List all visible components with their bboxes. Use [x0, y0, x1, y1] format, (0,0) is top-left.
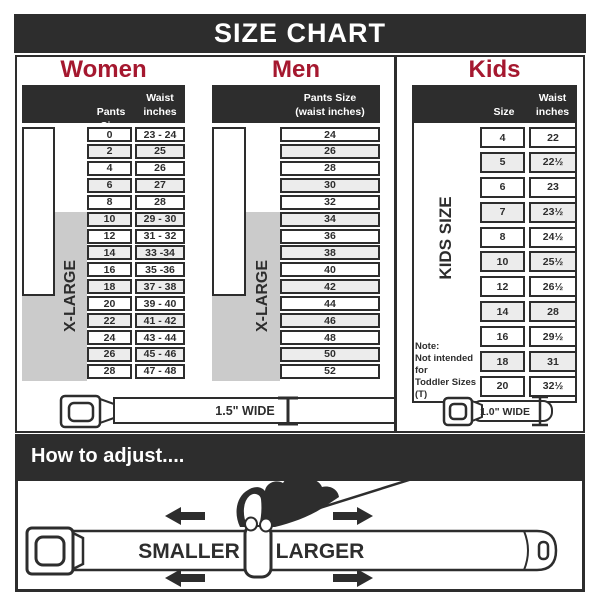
table-cell: 28 [529, 301, 577, 322]
table-row: 38 [280, 245, 380, 262]
table-cell: 2 [87, 144, 132, 159]
table-row: 426 [87, 161, 185, 178]
table-cell: 31 [529, 351, 577, 372]
table-cell: 26 [87, 347, 132, 362]
table-row: 2241 - 42 [87, 313, 185, 330]
table-cell: 28 [280, 161, 380, 176]
table-cell: 25½ [529, 251, 577, 272]
table-cell: 37 - 38 [135, 279, 185, 294]
table-cell: 32 [280, 195, 380, 210]
table-cell: 22 [87, 313, 132, 328]
size-chart-page: SIZE CHART Women Pants Size Waist inches… [0, 0, 600, 600]
table-cell: 28 [135, 195, 185, 210]
table-cell: 38 [280, 245, 380, 260]
table-cell: 50 [280, 347, 380, 362]
hand-thumbtip [260, 519, 272, 532]
table-cell: 24½ [529, 227, 577, 248]
table-cell: 45 - 46 [135, 347, 185, 362]
table-row: 623 [480, 177, 577, 202]
table-cell: 4 [480, 127, 525, 148]
table-cell: 29½ [529, 326, 577, 347]
table-cell: 48 [280, 330, 380, 345]
table-cell: 16 [87, 262, 132, 277]
table-row: 1029 - 30 [87, 212, 185, 229]
table-row: 40 [280, 262, 380, 279]
table-row: 225 [87, 144, 185, 161]
table-cell: 24 [87, 330, 132, 345]
table-cell: 47 - 48 [135, 364, 185, 379]
table-cell: 22½ [529, 152, 577, 173]
table-cell: 5 [480, 152, 525, 173]
adult-belt-illustration: 1.5" WIDE [20, 394, 395, 430]
kids-belt-width-label: 1.0" WIDE [480, 406, 530, 418]
table-row: 1433 -34 [87, 245, 185, 262]
table-cell: 43 - 44 [135, 330, 185, 345]
table-cell: 30 [280, 178, 380, 193]
adjust-illustration: SMALLER LARGER [18, 481, 582, 589]
kids-header-size: Size [480, 105, 528, 119]
table-cell: 22 [529, 127, 577, 148]
table-cell: 14 [87, 245, 132, 260]
table-cell: 0 [87, 127, 132, 142]
table-row: 52 [280, 364, 380, 381]
kids-header-waist: Waist inches [528, 91, 577, 119]
table-row: 1025½ [480, 251, 577, 276]
men-header-pants-size: Pants Size (waist inches) [280, 91, 380, 119]
table-row: 2847 - 48 [87, 364, 185, 381]
table-cell: 34 [280, 212, 380, 227]
page-title: SIZE CHART [214, 18, 386, 49]
table-row: 1231 - 32 [87, 229, 185, 246]
table-row: 48 [280, 330, 380, 347]
men-xlarge-label: X-LARGE [254, 260, 272, 332]
adjust-illustration-box: SMALLER LARGER [15, 478, 585, 592]
table-cell: 18 [87, 279, 132, 294]
table-cell: 28 [87, 364, 132, 379]
table-row: 44 [280, 296, 380, 313]
table-cell: 14 [480, 301, 525, 322]
adjust-title: How to adjust.... [15, 445, 184, 468]
women-size-table: 023 - 242254266278281029 - 301231 - 3214… [87, 127, 185, 381]
table-row: 46 [280, 313, 380, 330]
table-cell: 41 - 42 [135, 313, 185, 328]
table-row: 28 [280, 161, 380, 178]
table-row: 2645 - 46 [87, 347, 185, 364]
table-row: 723½ [480, 202, 577, 227]
table-row: 34 [280, 212, 380, 229]
buckle-window [36, 537, 64, 565]
table-row: 824½ [480, 227, 577, 252]
table-cell: 44 [280, 296, 380, 311]
table-cell: 23 - 24 [135, 127, 185, 142]
table-row: 24 [280, 127, 380, 144]
table-row: 50 [280, 347, 380, 364]
table-cell: 26 [135, 161, 185, 176]
table-cell: 23 [529, 177, 577, 198]
table-cell: 23½ [529, 202, 577, 223]
adjust-section-bar: How to adjust.... [15, 434, 585, 478]
table-cell: 52 [280, 364, 380, 379]
table-row: 30 [280, 178, 380, 195]
table-cell: 33 -34 [135, 245, 185, 260]
table-cell: 36 [280, 229, 380, 244]
table-cell: 24 [280, 127, 380, 142]
men-size-table: 242628303234363840424446485052 [280, 127, 380, 381]
table-cell: 29 - 30 [135, 212, 185, 227]
table-cell: 8 [480, 227, 525, 248]
table-row: 828 [87, 195, 185, 212]
women-regular-box [22, 127, 55, 296]
kids-size-table: 422522½623723½824½1025½1226½14281629½183… [480, 127, 577, 401]
kids-belt-illustration: 1.0" WIDE [440, 394, 560, 428]
table-cell: 46 [280, 313, 380, 328]
table-cell: 27 [135, 178, 185, 193]
table-row: 2443 - 44 [87, 330, 185, 347]
men-section-title: Men [212, 56, 380, 84]
table-row: 1635 -36 [87, 262, 185, 279]
table-cell: 40 [280, 262, 380, 277]
table-row: 1226½ [480, 276, 577, 301]
adult-belt-width-label: 1.5" WIDE [215, 404, 274, 418]
table-row: 522½ [480, 152, 577, 177]
table-cell: 18 [480, 351, 525, 372]
smaller-label: SMALLER [138, 540, 240, 563]
table-cell: 39 - 40 [135, 296, 185, 311]
table-row: 32 [280, 195, 380, 212]
table-cell: 10 [87, 212, 132, 227]
section-divider [394, 55, 397, 433]
table-row: 422 [480, 127, 577, 152]
kids-section-title: Kids [412, 56, 577, 84]
belt-tip-slot [539, 542, 548, 559]
kids-size-label: KIDS SIZE [436, 196, 456, 279]
table-row: 1831 [480, 351, 577, 376]
table-row: 26 [280, 144, 380, 161]
table-row: 023 - 24 [87, 127, 185, 144]
table-cell: 6 [480, 177, 525, 198]
hand-fingertip [245, 518, 257, 531]
table-cell: 20 [87, 296, 132, 311]
table-cell: 8 [87, 195, 132, 210]
table-cell: 16 [480, 326, 525, 347]
women-section-title: Women [22, 56, 185, 84]
table-cell: 4 [87, 161, 132, 176]
table-cell: 25 [135, 144, 185, 159]
belt-slide-clamp [245, 525, 271, 577]
table-row: 1629½ [480, 326, 577, 351]
table-row: 42 [280, 279, 380, 296]
title-bar: SIZE CHART [14, 14, 586, 53]
kids-note: Note: Not intended for Toddler Sizes (T) [415, 341, 479, 401]
women-xlarge-label: X-LARGE [62, 260, 80, 332]
table-cell: 12 [480, 276, 525, 297]
men-regular-box [212, 127, 246, 296]
table-row: 627 [87, 178, 185, 195]
larger-label: LARGER [276, 540, 365, 563]
table-cell: 26 [280, 144, 380, 159]
table-cell: 12 [87, 229, 132, 244]
table-row: 1428 [480, 301, 577, 326]
table-cell: 7 [480, 202, 525, 223]
adult-buckle-window [69, 403, 93, 421]
table-cell: 26½ [529, 276, 577, 297]
table-row: 1837 - 38 [87, 279, 185, 296]
table-row: 36 [280, 229, 380, 246]
adult-belt-loop [100, 399, 114, 423]
table-cell: 31 - 32 [135, 229, 185, 244]
table-row: 2039 - 40 [87, 296, 185, 313]
women-header-waist: Waist inches [135, 91, 185, 119]
kids-buckle-window [450, 404, 466, 419]
table-cell: 42 [280, 279, 380, 294]
table-cell: 10 [480, 251, 525, 272]
table-cell: 35 -36 [135, 262, 185, 277]
table-cell: 6 [87, 178, 132, 193]
